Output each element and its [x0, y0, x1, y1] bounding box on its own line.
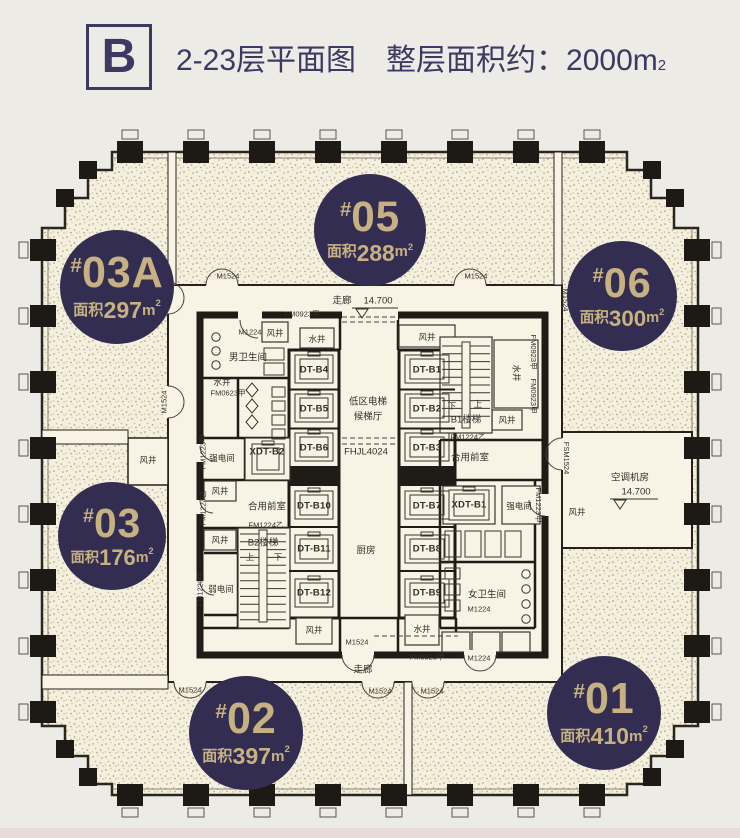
plan-label: DT-B7 — [413, 501, 441, 511]
plan-label: FM1224乙 — [450, 433, 485, 441]
b-sup: 2 — [643, 725, 648, 735]
plan-label: DT-B11 — [297, 544, 330, 554]
plan-label: M1524 — [421, 687, 444, 695]
b-unit: m — [142, 303, 155, 318]
plan-label: FM0623甲 — [210, 389, 245, 397]
plan-label: 14.700 — [363, 296, 392, 306]
plan-label: 风井 — [498, 416, 515, 425]
b-area: 297 — [103, 299, 142, 322]
b-area-prefix: 面积 — [202, 749, 232, 764]
bottom-strip — [0, 828, 740, 838]
plan-label: M1224 — [468, 605, 491, 613]
unit-area-line: 面积176m2 — [70, 547, 153, 569]
plan-label: XDT-B2 — [250, 447, 285, 457]
b-hash: # — [83, 507, 94, 527]
b-area: 300 — [609, 308, 646, 330]
plan-label: FM1224乙 — [199, 490, 207, 525]
plan-label: M1224 — [239, 328, 262, 336]
block-letter: B — [102, 33, 137, 81]
plan-label: M1524 — [346, 638, 369, 646]
plan-label: 走廊 — [332, 296, 351, 306]
b-area: 288 — [357, 242, 395, 265]
unit-number-line: #02 — [215, 698, 276, 741]
b-sup: 2 — [285, 745, 290, 755]
b-num: 03 — [94, 503, 141, 544]
plan-label: 风井 — [139, 456, 156, 465]
plan-label: 水井 — [512, 364, 521, 381]
plan-label: M1524 — [217, 272, 240, 280]
plan-label: FM1224乙 — [248, 521, 283, 529]
plan-label: 上 — [246, 553, 255, 562]
floorplan-page: B 2-23层平面图 整层面积约：2000m 2 — [0, 0, 740, 838]
plan-label: 走廊 — [353, 665, 372, 675]
plan-label: 女卫生间 — [468, 590, 506, 600]
unit-badge-03A: #03A面积297m2 — [60, 230, 174, 344]
plan-label: 低区电梯 — [349, 397, 387, 407]
plan-label: M1524 — [369, 687, 392, 695]
plan-label: M1224 — [468, 654, 491, 662]
plan-label: FM0923甲 — [284, 310, 319, 318]
plan-label: 风井 — [211, 536, 228, 545]
plan-label: 水井 — [213, 378, 230, 387]
b-hash: # — [573, 682, 585, 703]
plan-label: 风井 — [418, 333, 435, 342]
b-unit: m — [629, 729, 642, 744]
plan-label: 候梯厅 — [354, 412, 383, 422]
unit-badge-03: #03面积176m2 — [58, 482, 166, 590]
b-unit: m — [136, 551, 149, 565]
unit-badge-06: #06面积300m2 — [567, 241, 677, 351]
unit-badge-02: #02面积397m2 — [189, 676, 303, 790]
plan-label: 水井 — [308, 335, 325, 344]
plan-label: FHJL4024 — [344, 447, 388, 457]
plan-label: FM0923甲 — [409, 653, 444, 661]
plan-label: B2楼梯 — [248, 538, 279, 548]
page-title: 2-23层平面图 整层面积约：2000m 2 — [176, 35, 666, 79]
plan-label: 水井 — [413, 625, 430, 634]
block-letter-badge: B — [86, 24, 152, 90]
area-superscript: 2 — [658, 57, 666, 74]
plan-label: B1楼梯 — [451, 415, 482, 425]
plan-label: FM0923甲 — [529, 378, 537, 413]
plan-label: XDT-B1 — [452, 500, 487, 510]
plan-label: 风井 — [266, 329, 283, 338]
plan-label: 14.700 — [621, 487, 650, 497]
plan-label: DT-B6 — [300, 443, 328, 453]
b-unit: m — [271, 749, 284, 764]
plan-label: DT-B10 — [297, 501, 331, 511]
plan-label: 强电间 — [209, 454, 235, 463]
b-sup: 2 — [659, 308, 664, 317]
b-area: 176 — [99, 547, 136, 569]
b-hash: # — [592, 266, 603, 286]
b-unit: m — [395, 245, 408, 260]
plan-label: DT-B2 — [413, 404, 441, 414]
b-sup: 2 — [408, 242, 413, 251]
b-area: 410 — [590, 725, 629, 748]
unit-badge-01: #01面积410m2 — [547, 656, 661, 770]
plan-label: 下 — [448, 402, 457, 411]
plan-label: DT-B9 — [413, 588, 441, 598]
plan-label: FSM1524 — [562, 442, 570, 475]
title-bar: B 2-23层平面图 整层面积约：2000m 2 — [86, 24, 666, 90]
unit-number-line: #03A — [70, 252, 163, 295]
b-area-prefix: 面积 — [70, 551, 99, 565]
plan-label: FM0923甲 — [529, 334, 537, 369]
unit-number-line: #05 — [340, 196, 400, 238]
b-area-prefix: 面积 — [327, 245, 357, 260]
unit-area-line: 面积288m2 — [327, 242, 413, 265]
b-area-prefix: 面积 — [560, 729, 590, 744]
plan-label: DT-B8 — [413, 544, 441, 554]
b-area: 397 — [232, 745, 271, 768]
plan-label: FM1223甲 — [534, 487, 542, 522]
unit-area-line: 面积397m2 — [202, 745, 290, 768]
unit-number-line: #03 — [83, 503, 141, 544]
plan-label: 强电间 — [506, 502, 532, 511]
plan-label: 厨房 — [356, 546, 375, 556]
plan-label: 空调机房 — [611, 473, 649, 483]
b-hash: # — [70, 256, 82, 277]
unit-area-line: 面积410m2 — [560, 725, 648, 748]
b-sup: 2 — [156, 299, 161, 309]
plan-label: 弱电间 — [208, 585, 234, 594]
plan-label: 合用前室 — [451, 453, 489, 463]
plan-label: M1524 — [465, 272, 488, 280]
plan-label: DT-B1 — [413, 365, 441, 375]
plan-label: 上 — [474, 400, 483, 409]
b-num: 05 — [351, 196, 400, 238]
unit-number-line: #01 — [573, 678, 634, 721]
plan-label: DT-B5 — [300, 404, 328, 414]
plan-label: 风井 — [568, 508, 585, 517]
b-num: 02 — [227, 698, 277, 741]
plan-label: 风井 — [211, 487, 228, 496]
plan-label: FM1223甲 — [199, 434, 207, 469]
plan-label: M1524 — [179, 686, 202, 694]
b-sup: 2 — [149, 547, 154, 556]
plan-label: 下 — [274, 553, 283, 562]
unit-area-line: 面积300m2 — [580, 308, 665, 330]
b-hash: # — [215, 702, 227, 723]
plan-label: DT-B12 — [297, 588, 331, 598]
b-area-prefix: 面积 — [580, 311, 609, 326]
plan-label: DT-B3 — [413, 443, 441, 453]
b-hash: # — [340, 200, 351, 220]
unit-badge-05: #05面积288m2 — [314, 174, 426, 286]
plan-label: 男卫生间 — [229, 353, 267, 363]
b-area-prefix: 面积 — [73, 303, 103, 318]
unit-number-line: #06 — [592, 262, 651, 304]
b-unit: m — [646, 311, 659, 326]
unit-area-line: 面积297m2 — [73, 299, 161, 322]
total-area-note: 整层面积约：2000m — [386, 35, 658, 79]
plan-label: 合用前室 — [248, 502, 286, 512]
b-num: 01 — [585, 678, 635, 721]
b-num: 03A — [82, 252, 164, 295]
plan-label: FM1223甲 — [196, 571, 204, 606]
plan-label: 风井 — [305, 626, 322, 635]
plan-label: DT-B4 — [300, 365, 328, 375]
plan-label: M1524 — [160, 391, 168, 414]
floor-range-title: 2-23层平面图 — [176, 35, 356, 79]
b-num: 06 — [604, 262, 652, 304]
